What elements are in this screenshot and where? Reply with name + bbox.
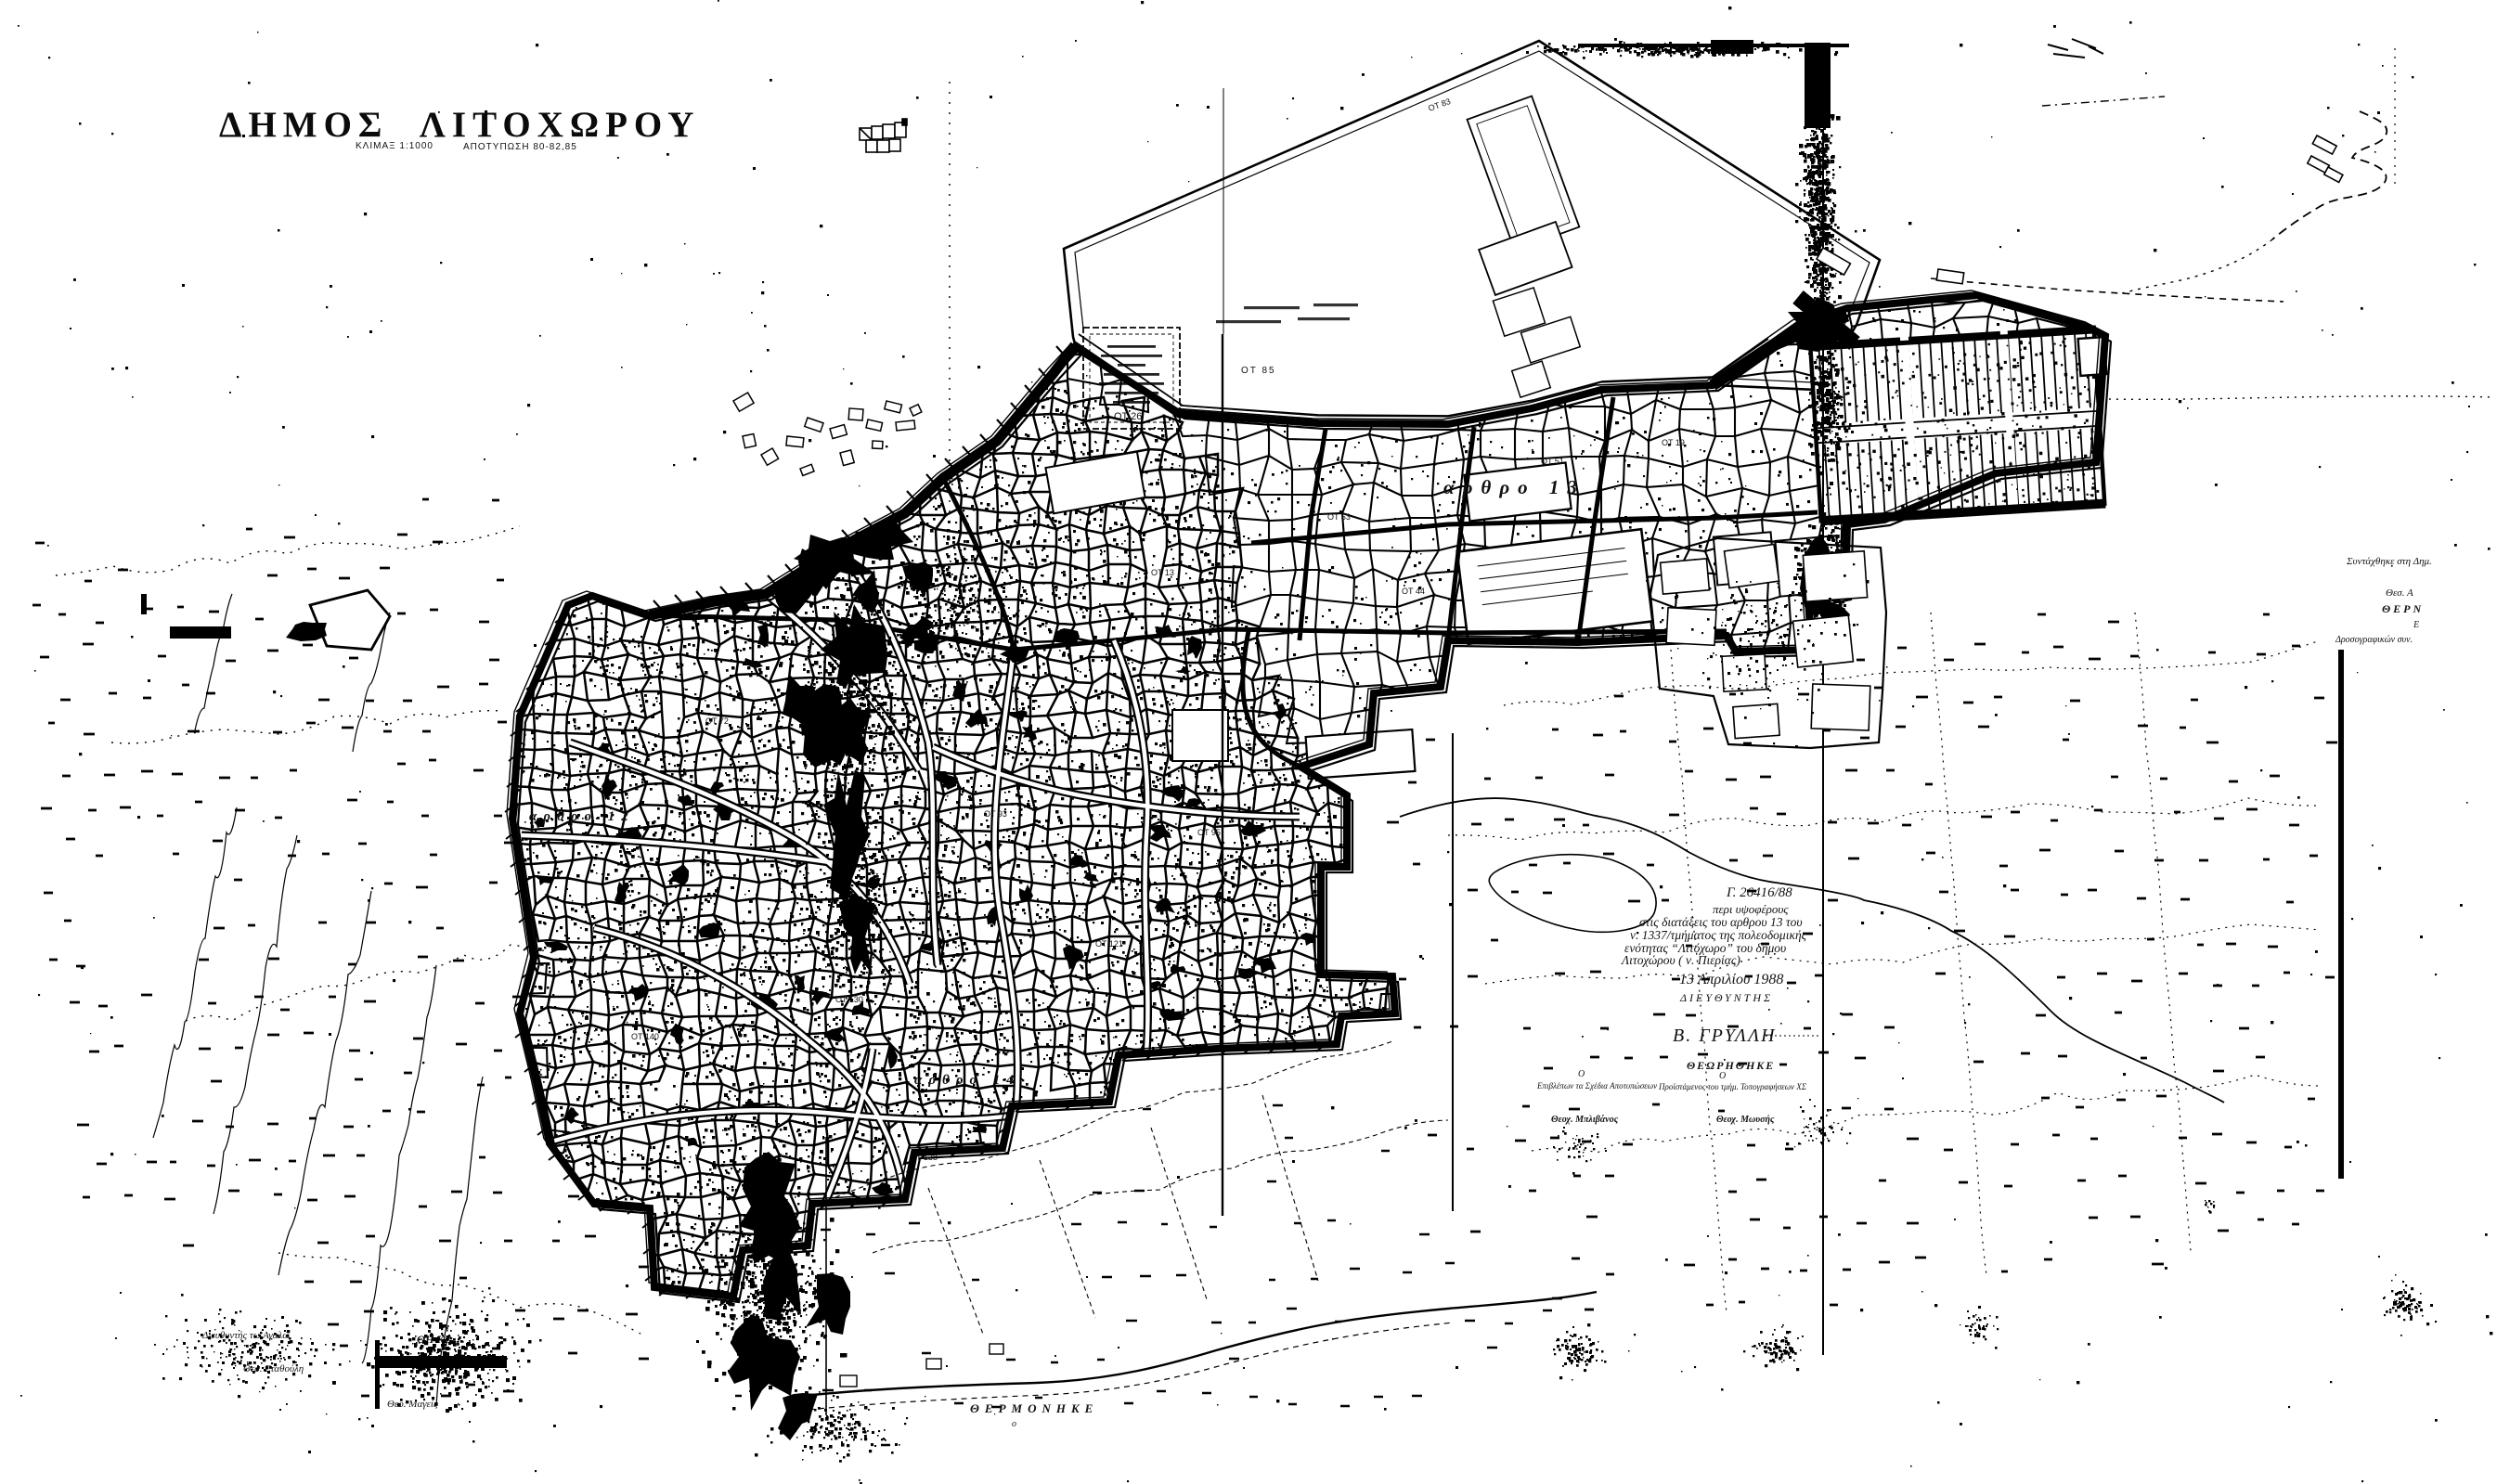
svg-text:ΚΛΙΜΑΞ 1:1000: ΚΛΙΜΑΞ 1:1000 bbox=[356, 141, 433, 151]
svg-text:ΘΕΡΜΟΝΗΚΕ: ΘΕΡΜΟΝΗΚΕ bbox=[970, 1401, 1098, 1415]
svg-text:αρθρο 12: αρθρο 12 bbox=[529, 809, 635, 824]
svg-text:Ο: Ο bbox=[1719, 1071, 1726, 1081]
svg-text:Διευθυντής τω Αγαλώ: Διευθυντής τω Αγαλώ bbox=[201, 1330, 290, 1341]
svg-text:ΟΤ 130: ΟΤ 130 bbox=[835, 995, 863, 1004]
svg-text:ΟΤ 13: ΟΤ 13 bbox=[1151, 568, 1174, 577]
svg-text:ΘΕΩΡΗΘΗΚΕ: ΘΕΩΡΗΘΗΚΕ bbox=[1687, 1059, 1775, 1072]
svg-text:Θεοχ. Μπλιβάνος: Θεοχ. Μπλιβάνος bbox=[1551, 1115, 1619, 1125]
svg-text:Λιτοχώρου ( ν. Πιερίας): Λιτοχώρου ( ν. Πιερίας) bbox=[1620, 953, 1740, 967]
svg-text:αρθρο 13: αρθρο 13 bbox=[1443, 476, 1585, 498]
svg-text:Ε: Ε bbox=[2413, 620, 2419, 630]
svg-text:Β. ΓΡΥΛΛΗ: Β. ΓΡΥΛΛΗ bbox=[1673, 1026, 1777, 1046]
svg-text:ΑΠΟΤΥΠΩΣΗ 80-82,85: ΑΠΟΤΥΠΩΣΗ 80-82,85 bbox=[463, 142, 577, 152]
svg-text:ΟΤ 95: ΟΤ 95 bbox=[1197, 828, 1221, 837]
svg-text:Συντάχθηκε στη Δημ.: Συντάχθηκε στη Δημ. bbox=[2346, 556, 2432, 567]
svg-text:ΟΤ 72: ΟΤ 72 bbox=[705, 716, 729, 726]
svg-text:αρθρο 14: αρθρο 14 bbox=[914, 1073, 1020, 1088]
svg-text:ΟΤ 19: ΟΤ 19 bbox=[1662, 438, 1685, 447]
svg-text:Δροσογραφικών συν.: Δροσογραφικών συν. bbox=[2335, 635, 2413, 645]
svg-text:στις διατάξεις του αρθρου 13 τ: στις διατάξεις του αρθρου 13 του bbox=[1639, 915, 1803, 929]
svg-text:ο: ο bbox=[1012, 1419, 1016, 1429]
svg-text:Θεσ. Α: Θεσ. Α bbox=[2386, 587, 2413, 599]
svg-text:ν. 1337/τμήματος της πολεοδομι: ν. 1337/τμήματος της πολεοδομικής bbox=[1630, 928, 1807, 942]
svg-text:Επιβλέπων τα Σχέδια Αποτυπώσεω: Επιβλέπων τα Σχέδια Αποτυπώσεων bbox=[1536, 1081, 1657, 1090]
svg-text:ΘΕΡΝ: ΘΕΡΝ bbox=[2382, 602, 2424, 615]
svg-text:ΟΤ 53: ΟΤ 53 bbox=[1327, 512, 1351, 522]
svg-text:Προϊστάμενος του τμήμ. Τοπογρα: Προϊστάμενος του τμήμ. Τοπογραφήσεων ΧΣ bbox=[1658, 1082, 1807, 1091]
svg-text:Θεο. Μαγείς: Θεο. Μαγείς bbox=[387, 1399, 438, 1410]
svg-text:Ο: Ο bbox=[1578, 1069, 1585, 1079]
svg-text:ΟΤ 140: ΟΤ 140 bbox=[631, 1032, 659, 1041]
svg-text:ΟΤ 51: ΟΤ 51 bbox=[1541, 457, 1564, 466]
svg-text:ΔΗΜΟΣ ΛΙΤΟΧΩΡΟΥ: ΔΗΜΟΣ ΛΙΤΟΧΩΡΟΥ bbox=[219, 105, 700, 145]
svg-text:13 Απριλίου 1988: 13 Απριλίου 1988 bbox=[1679, 972, 1783, 987]
svg-text:Θεοχ. Μωυσής: Θεοχ. Μωυσής bbox=[1716, 1115, 1775, 1125]
svg-text:ΟΤ 44: ΟΤ 44 bbox=[1402, 587, 1425, 596]
svg-text:Γ. 26416/88: Γ. 26416/88 bbox=[1726, 885, 1792, 900]
svg-text:ΟΤ 85: ΟΤ 85 bbox=[1241, 366, 1276, 376]
svg-text:ΔΙΕΥΘΥΝΤΗΣ: ΔΙΕΥΘΥΝΤΗΣ bbox=[1679, 991, 1773, 1004]
svg-text:περι υψοφέρους: περι υψοφέρους bbox=[1713, 902, 1789, 916]
svg-text:ΟΤ 93: ΟΤ 93 bbox=[984, 809, 1007, 819]
svg-text:ΟΤ 121: ΟΤ 121 bbox=[1095, 939, 1123, 948]
